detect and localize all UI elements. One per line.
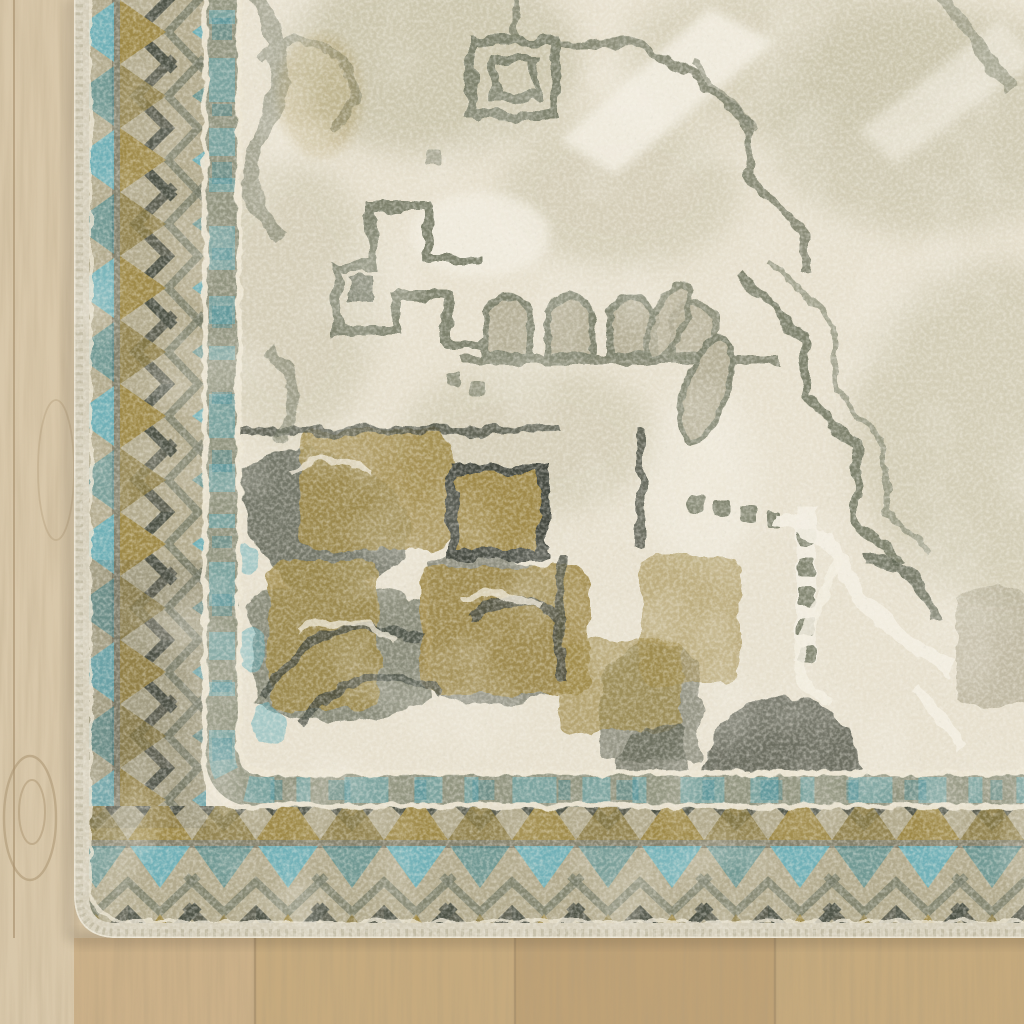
- photo-grain-overlay: [0, 0, 1024, 1024]
- rug-photograph: [0, 0, 1024, 1024]
